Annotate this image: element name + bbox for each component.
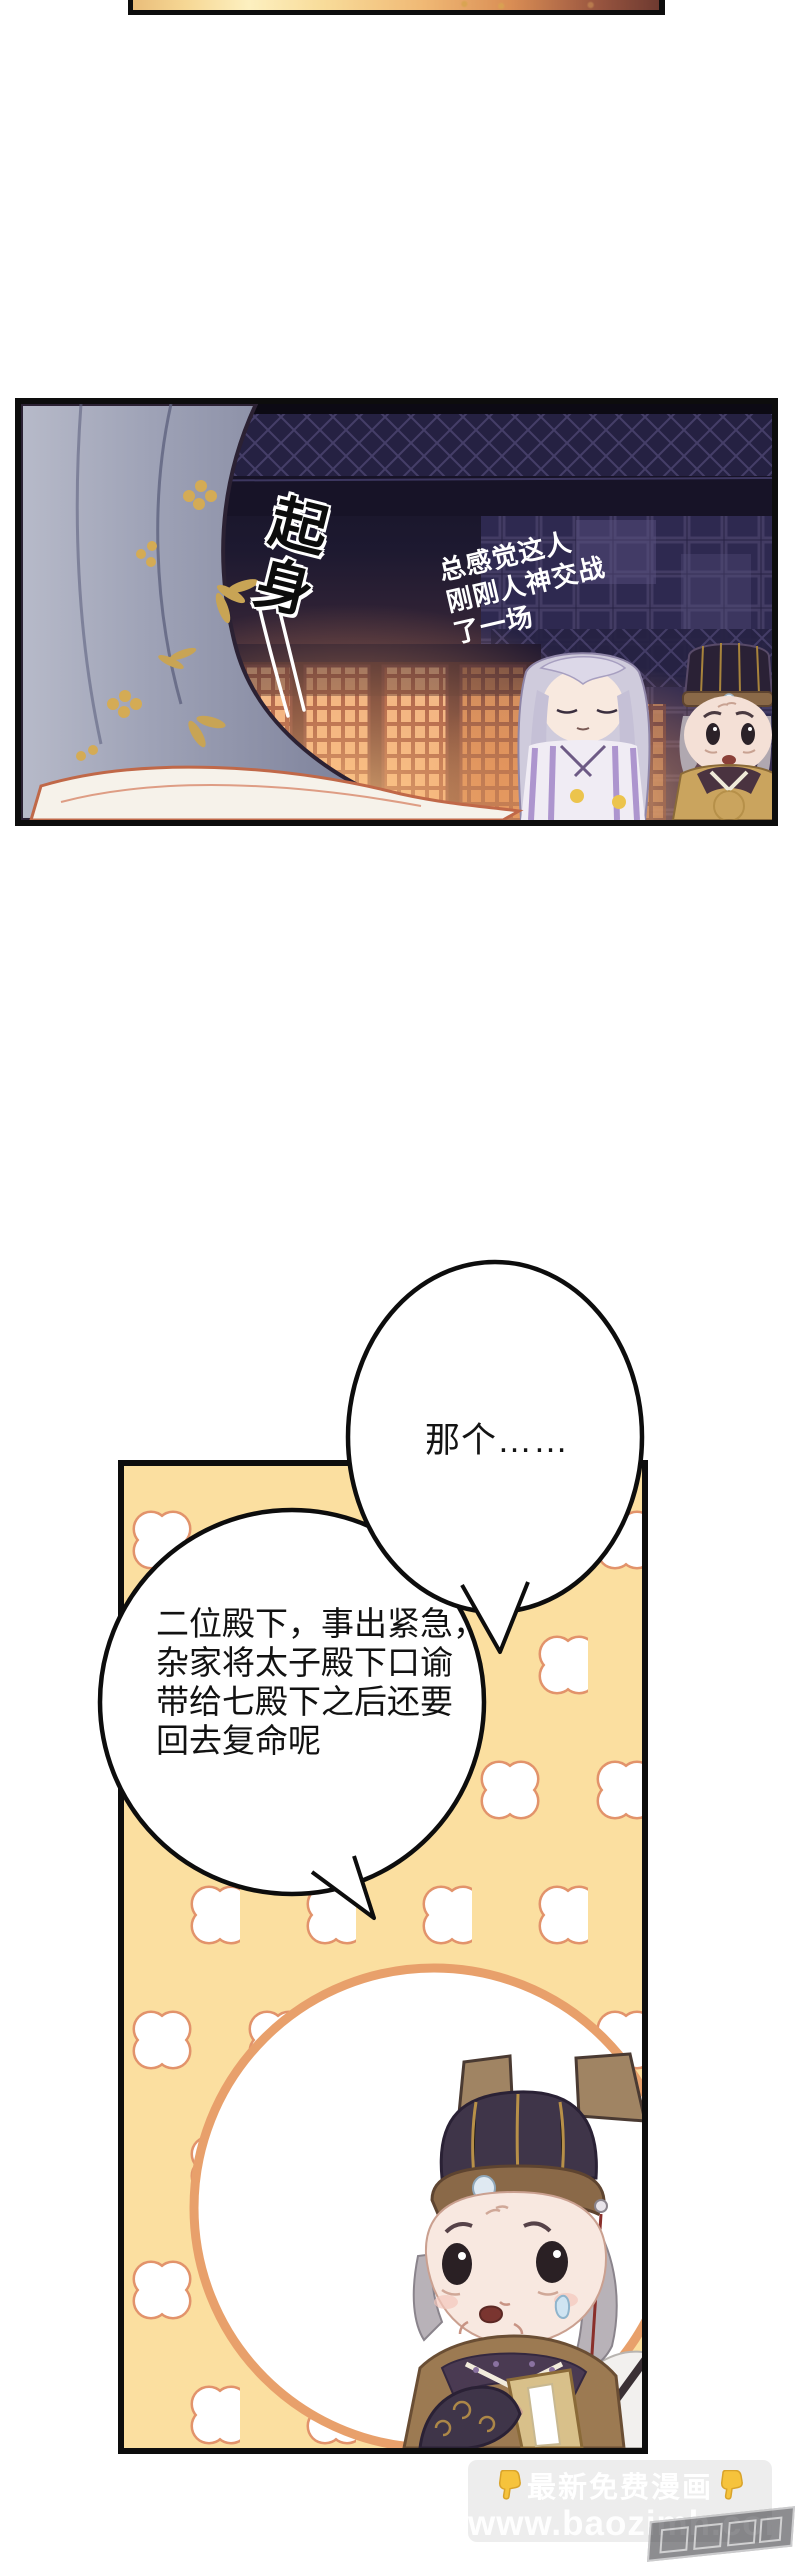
palace-night-panel xyxy=(15,398,778,826)
stamp-glyph xyxy=(659,2526,689,2553)
silver-hair-character xyxy=(518,653,649,820)
bubble-large-line: 回去复命呢 xyxy=(156,1721,486,1760)
hand-pointing-down-icon xyxy=(719,2470,743,2500)
bubble-small-text: 那个…… xyxy=(372,1412,622,1463)
sweat-drop xyxy=(556,2296,569,2318)
bubble-large-line: 带给七殿下之后还要 xyxy=(156,1682,486,1721)
bubble-large-line: 杂家将太子殿下口谕 xyxy=(156,1643,486,1682)
hat-wing-right xyxy=(576,2054,642,2121)
speech-bubbles xyxy=(80,1250,660,1950)
stamp-glyph xyxy=(727,2519,757,2546)
top-partial-panel xyxy=(128,0,665,15)
palace-night-art xyxy=(21,404,772,820)
stamp-glyph xyxy=(693,2523,723,2550)
eye-right xyxy=(536,2241,568,2283)
eye-left xyxy=(442,2243,472,2285)
comic-page: 起身 总感觉这人 刚刚人神交战 了一场 xyxy=(0,0,800,2563)
stamp-glyph xyxy=(759,2516,783,2543)
bubble-large-line: 二位殿下，事出紧急， xyxy=(156,1604,486,1643)
bubble-large-text: 二位殿下，事出紧急， 杂家将太子殿下口谕 带给七殿下之后还要 回去复命呢 xyxy=(156,1604,486,1760)
watermark-promo-row: 最新免费漫画 xyxy=(468,2464,772,2506)
mouth xyxy=(480,2307,502,2323)
hand-pointing-down-icon xyxy=(497,2470,521,2500)
watermark-promo-text: 最新免费漫画 xyxy=(527,2464,713,2506)
official-character xyxy=(673,643,772,820)
